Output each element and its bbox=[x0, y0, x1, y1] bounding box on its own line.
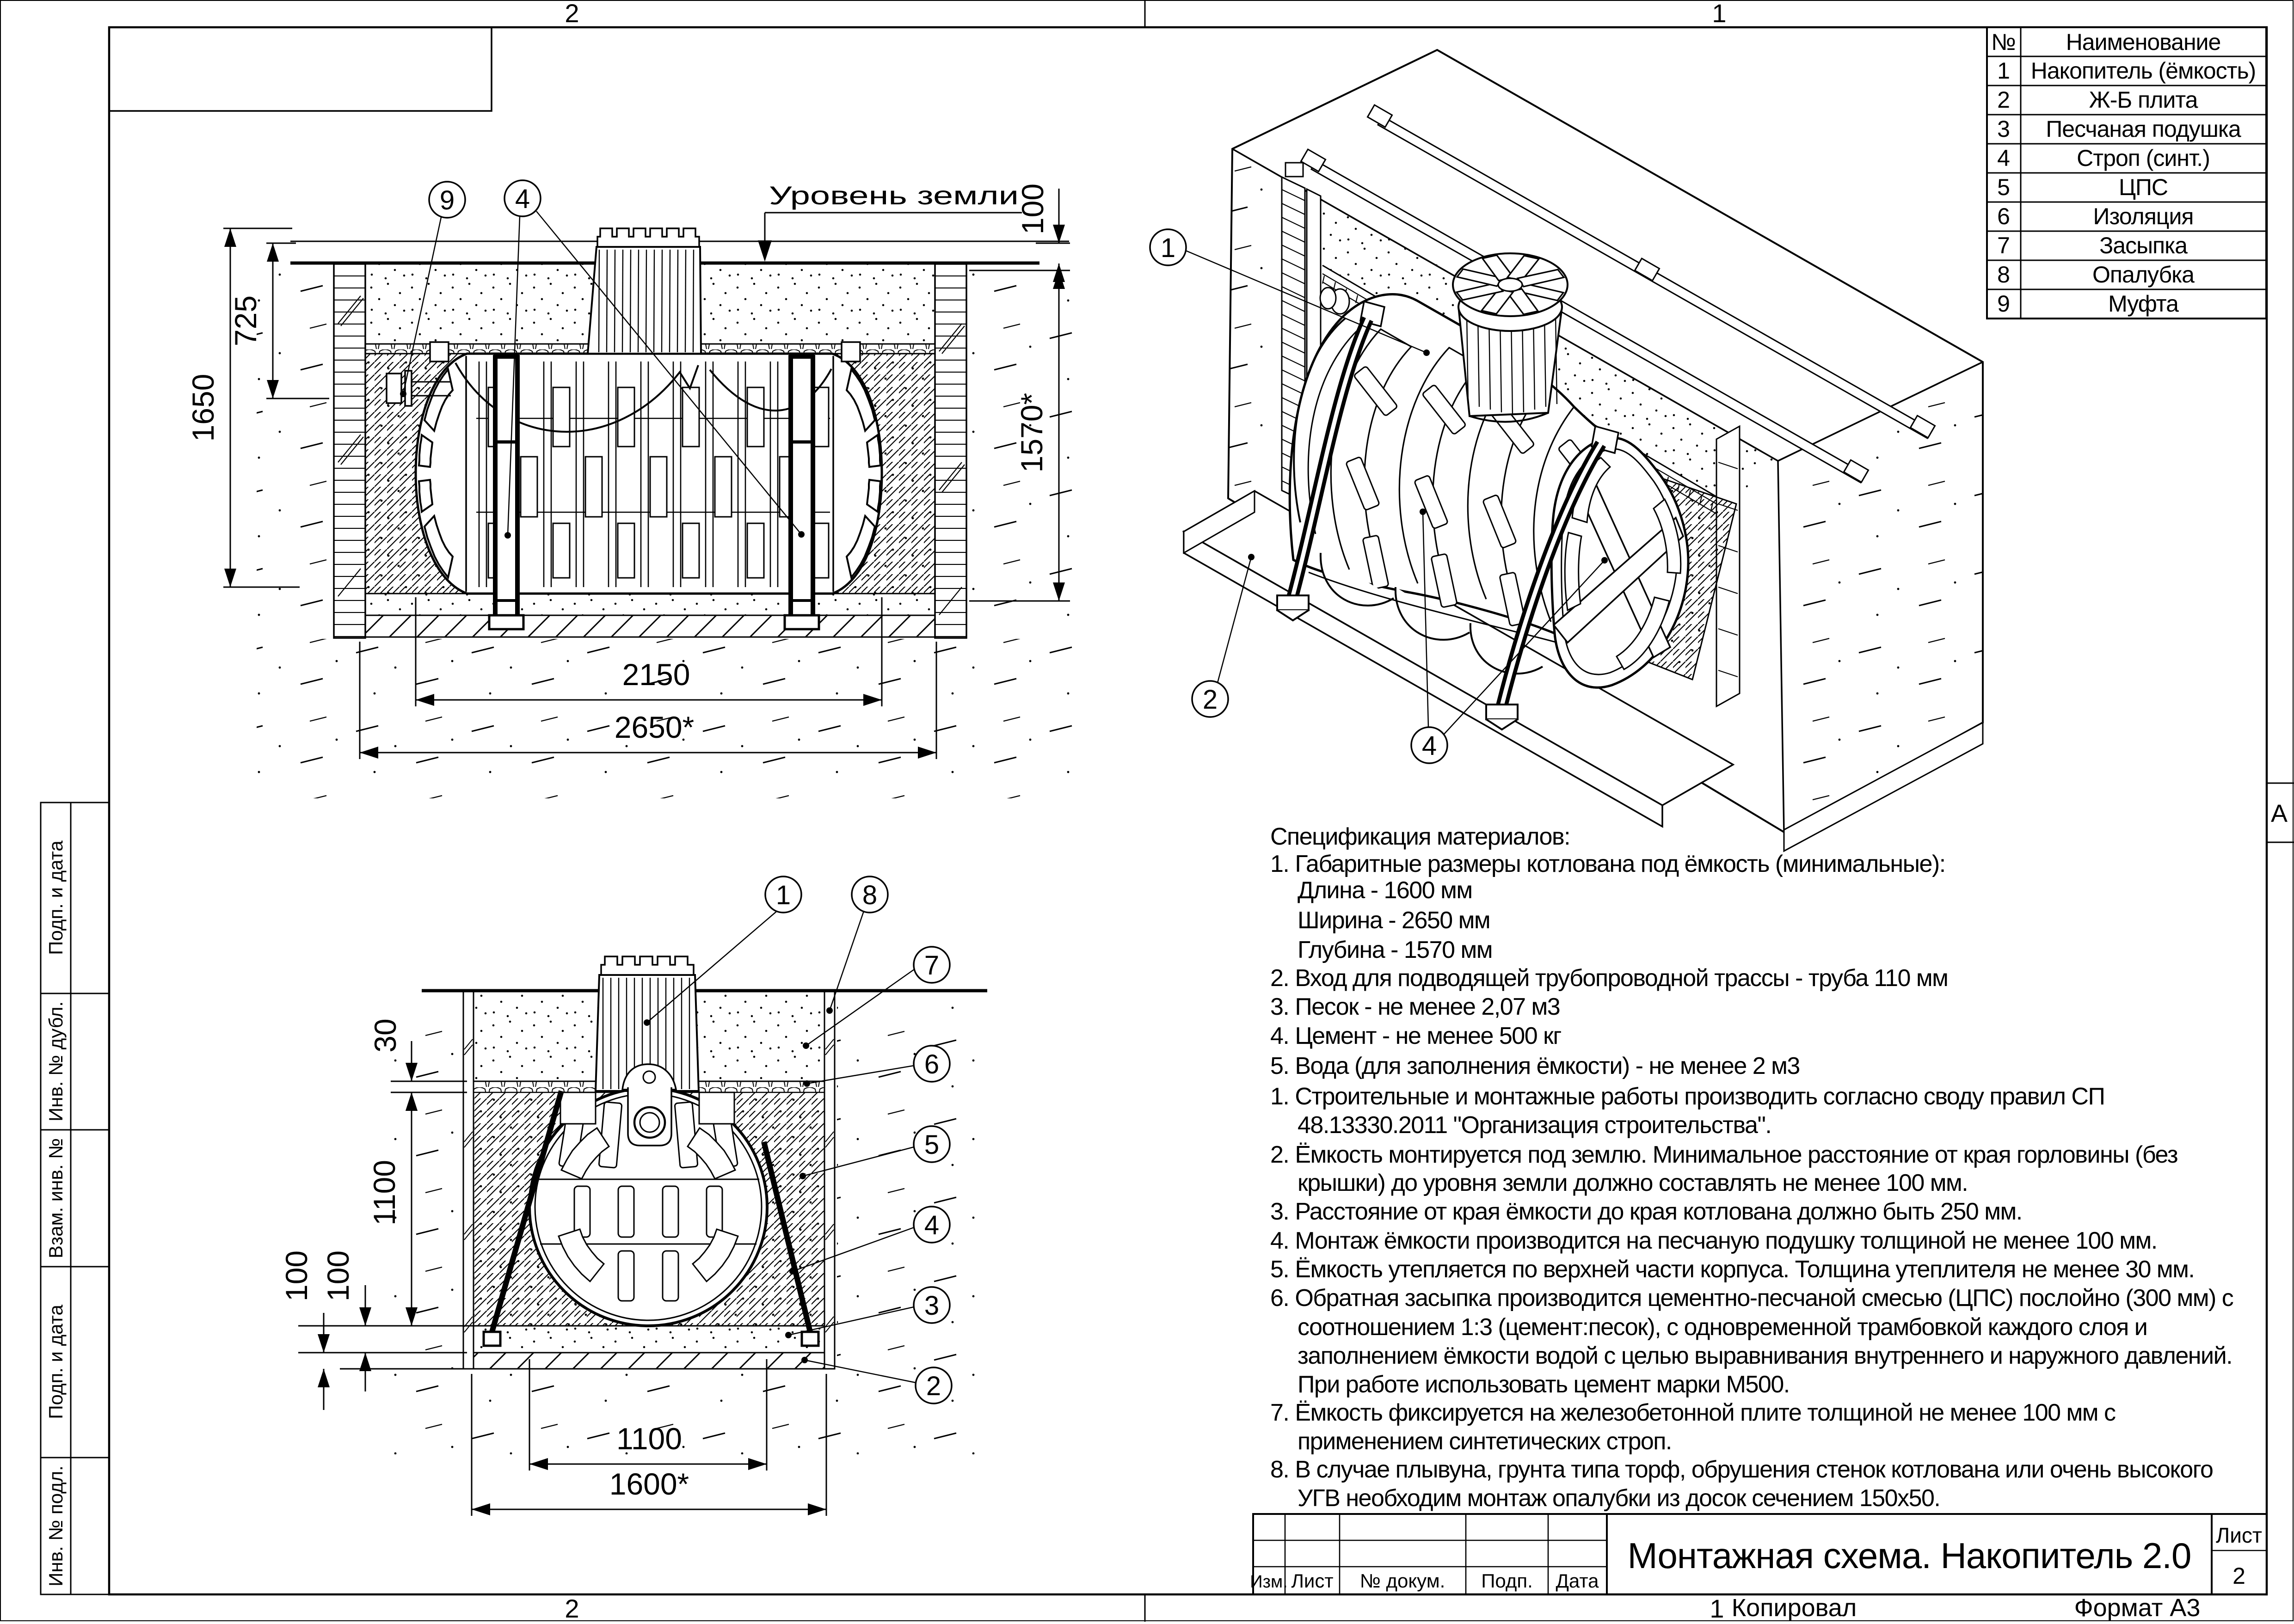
svg-text:Строп (синт.): Строп (синт.) bbox=[2077, 145, 2210, 171]
svg-text:2650*: 2650* bbox=[615, 710, 695, 744]
svg-text:1100: 1100 bbox=[616, 1422, 682, 1456]
svg-text:5: 5 bbox=[1997, 174, 2010, 200]
svg-text:Копировал: Копировал bbox=[1732, 1594, 1857, 1622]
svg-text:1. Строительные и монтажные ра: 1. Строительные и монтажные работы произ… bbox=[1270, 1083, 2104, 1110]
svg-text:6: 6 bbox=[924, 1049, 939, 1079]
svg-text:1570*: 1570* bbox=[1015, 393, 1049, 473]
svg-text:4. Цемент - не менее 500 кг: 4. Цемент - не менее 500 кг bbox=[1270, 1023, 1561, 1049]
svg-text:Лист: Лист bbox=[1291, 1570, 1333, 1592]
svg-text:8: 8 bbox=[862, 880, 877, 910]
svg-text:4: 4 bbox=[1997, 145, 2010, 171]
svg-text:Накопитель (ёмкость): Накопитель (ёмкость) bbox=[2031, 58, 2256, 84]
svg-text:Изоляция: Изоляция bbox=[2093, 203, 2194, 229]
svg-text:При работе использовать цемент: При работе использовать цемент марки М50… bbox=[1298, 1371, 1790, 1398]
svg-text:9: 9 bbox=[1997, 291, 2010, 317]
svg-text:2: 2 bbox=[565, 0, 579, 28]
svg-text:Дата: Дата bbox=[1556, 1570, 1599, 1592]
svg-text:5. Ёмкость утепляется по верхн: 5. Ёмкость утепляется по верхней части к… bbox=[1270, 1256, 2194, 1283]
svg-text:Муфта: Муфта bbox=[2108, 291, 2179, 317]
svg-text:Уровень земли: Уровень земли bbox=[769, 181, 1019, 210]
svg-text:8: 8 bbox=[1997, 262, 2010, 288]
svg-text:3. Песок - не менее 2,07 м3: 3. Песок - не менее 2,07 м3 bbox=[1270, 993, 1560, 1020]
svg-text:№: № bbox=[1991, 29, 2016, 55]
svg-text:30: 30 bbox=[368, 1018, 402, 1052]
svg-text:6. Обратная засыпка производит: 6. Обратная засыпка производится цементн… bbox=[1270, 1285, 2233, 1311]
svg-text:7: 7 bbox=[1997, 233, 2010, 258]
svg-text:5. Вода (для заполнения ёмкост: 5. Вода (для заполнения ёмкости) - не ме… bbox=[1270, 1053, 1800, 1079]
svg-text:Опалубка: Опалубка bbox=[2092, 262, 2195, 288]
svg-text:725: 725 bbox=[228, 295, 263, 346]
svg-text:3. Расстояние от края ёмкости: 3. Расстояние от края ёмкости до края ко… bbox=[1270, 1198, 2022, 1225]
svg-text:Спецификация материалов:: Спецификация материалов: bbox=[1270, 823, 1570, 850]
svg-text:Лист: Лист bbox=[2216, 1523, 2262, 1547]
svg-text:1: 1 bbox=[1161, 233, 1175, 263]
svg-text:8. В случае плывуна, грунта ти: 8. В случае плывуна, грунта типа торф, о… bbox=[1270, 1456, 2213, 1483]
svg-text:4: 4 bbox=[924, 1210, 939, 1240]
svg-text:100: 100 bbox=[321, 1250, 355, 1301]
svg-text:100: 100 bbox=[279, 1250, 314, 1301]
svg-text:4: 4 bbox=[1422, 731, 1437, 761]
svg-text:2. Вход для подводящей трубопр: 2. Вход для подводящей трубопроводной тр… bbox=[1270, 965, 1948, 992]
svg-text:2: 2 bbox=[1203, 685, 1218, 715]
svg-text:Засыпка: Засыпка bbox=[2099, 233, 2188, 258]
svg-text:48.13330.2011 "Организация стр: 48.13330.2011 "Организация строительства… bbox=[1298, 1112, 1771, 1139]
svg-text:4: 4 bbox=[515, 184, 530, 214]
svg-text:2: 2 bbox=[1997, 87, 2010, 113]
svg-text:соотношением 1:3 (цемент:песок: соотношением 1:3 (цемент:песок), с однов… bbox=[1298, 1314, 2147, 1341]
svg-text:УГВ необходим монтаж опалубки: УГВ необходим монтаж опалубки из досок с… bbox=[1298, 1485, 1940, 1512]
svg-text:Песчаная подушка: Песчаная подушка bbox=[2046, 116, 2241, 142]
svg-text:Инв. № подл.: Инв. № подл. bbox=[45, 1465, 67, 1587]
svg-text:Монтажная схема. Накопитель 2.: Монтажная схема. Накопитель 2.0 bbox=[1628, 1535, 2191, 1576]
svg-text:2: 2 bbox=[926, 1371, 941, 1401]
svg-text:1. Габаритные размеры котлован: 1. Габаритные размеры котлована под ёмко… bbox=[1270, 851, 1945, 877]
svg-text:1: 1 bbox=[1712, 0, 1726, 28]
svg-text:Ширина - 2650 мм: Ширина - 2650 мм bbox=[1298, 907, 1490, 934]
svg-text:9: 9 bbox=[440, 185, 455, 215]
svg-text:Формат А3: Формат А3 bbox=[2074, 1594, 2201, 1622]
svg-text:А: А bbox=[2271, 800, 2288, 827]
svg-text:Подп. и дата: Подп. и дата bbox=[45, 1305, 67, 1419]
svg-text:1600*: 1600* bbox=[609, 1467, 689, 1501]
svg-text:1: 1 bbox=[1710, 1594, 1724, 1622]
svg-text:3: 3 bbox=[1997, 116, 2010, 142]
svg-text:№ докум.: № докум. bbox=[1360, 1570, 1445, 1592]
svg-text:2150: 2150 bbox=[622, 657, 690, 692]
svg-text:2: 2 bbox=[565, 1594, 579, 1622]
svg-text:7. Ёмкость фиксируется на жел: 7. Ёмкость фиксируется на железобетонной… bbox=[1270, 1399, 2116, 1426]
svg-text:2: 2 bbox=[2232, 1563, 2245, 1589]
svg-text:1650: 1650 bbox=[186, 374, 220, 442]
svg-text:Наименование: Наименование bbox=[2066, 29, 2221, 55]
svg-text:Взам. инв. №: Взам. инв. № bbox=[45, 1138, 67, 1258]
svg-text:Ж-Б плита: Ж-Б плита bbox=[2089, 87, 2198, 113]
svg-text:применением синтетических стро: применением синтетических строп. bbox=[1298, 1428, 1672, 1455]
svg-text:1: 1 bbox=[1997, 58, 2010, 84]
svg-text:крышки) до уровня земли должно: крышки) до уровня земли должно составлят… bbox=[1298, 1170, 1968, 1196]
svg-text:заполнением ёмкости водой с це: заполнением ёмкости водой с целью выравн… bbox=[1298, 1342, 2232, 1369]
svg-text:Подп. и дата: Подп. и дата bbox=[45, 840, 67, 955]
svg-text:ЦПС: ЦПС bbox=[2119, 174, 2168, 200]
svg-text:Подп.: Подп. bbox=[1481, 1570, 1533, 1592]
svg-text:100: 100 bbox=[1015, 184, 1050, 234]
svg-text:7: 7 bbox=[924, 950, 939, 981]
svg-text:5: 5 bbox=[924, 1130, 939, 1160]
svg-text:Глубина - 1570 мм: Глубина - 1570 мм bbox=[1298, 937, 1492, 963]
svg-text:6: 6 bbox=[1997, 203, 2010, 229]
svg-text:1: 1 bbox=[776, 880, 791, 910]
svg-text:3: 3 bbox=[924, 1291, 939, 1321]
svg-text:Длина - 1600 мм: Длина - 1600 мм bbox=[1298, 877, 1472, 904]
svg-text:1100: 1100 bbox=[367, 1160, 401, 1226]
svg-text:2. Ёмкость монтируется под зем: 2. Ёмкость монтируется под землю. Минима… bbox=[1270, 1141, 2177, 1168]
svg-text:Изм.: Изм. bbox=[1250, 1572, 1287, 1592]
svg-text:Инв. № дубл.: Инв. № дубл. bbox=[45, 1001, 67, 1121]
svg-text:4. Монтаж ёмкости производится: 4. Монтаж ёмкости производится на песчан… bbox=[1270, 1227, 2157, 1254]
